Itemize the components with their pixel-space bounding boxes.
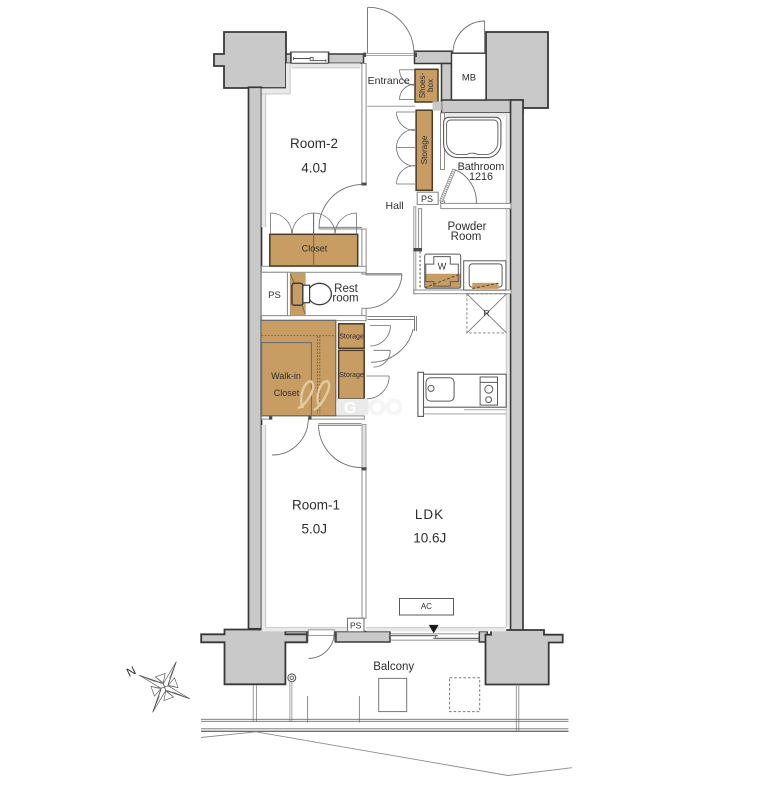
svg-text:AC: AC <box>421 602 432 611</box>
svg-text:Hall: Hall <box>386 200 404 212</box>
svg-text:R: R <box>484 308 490 318</box>
svg-text:Room-1: Room-1 <box>292 498 340 513</box>
svg-text:Room: Room <box>451 231 482 243</box>
svg-text:Walk-in: Walk-in <box>271 371 301 381</box>
svg-text:5.0J: 5.0J <box>302 522 328 537</box>
svg-text:MB: MB <box>462 73 476 84</box>
svg-text:PS: PS <box>421 194 433 204</box>
svg-text:10.6J: 10.6J <box>413 531 446 546</box>
svg-text:4.0J: 4.0J <box>301 161 327 176</box>
svg-text:PS: PS <box>268 290 281 301</box>
svg-text:Closet: Closet <box>302 244 328 254</box>
svg-text:LDK: LDK <box>415 507 444 522</box>
svg-text:Closet: Closet <box>274 388 300 398</box>
svg-text:PS: PS <box>350 621 362 631</box>
svg-text:Storage: Storage <box>420 135 429 164</box>
svg-text:W: W <box>438 262 447 272</box>
svg-text:Storage: Storage <box>339 334 364 341</box>
svg-text:Room-2: Room-2 <box>290 136 338 151</box>
svg-text:room: room <box>332 293 358 305</box>
svg-text:1216: 1216 <box>469 171 493 183</box>
svg-text:G: G <box>344 400 356 417</box>
svg-text:Storage: Storage <box>339 372 364 379</box>
svg-text:Balcony: Balcony <box>373 661 414 673</box>
svg-text:Entrance: Entrance <box>368 75 410 87</box>
